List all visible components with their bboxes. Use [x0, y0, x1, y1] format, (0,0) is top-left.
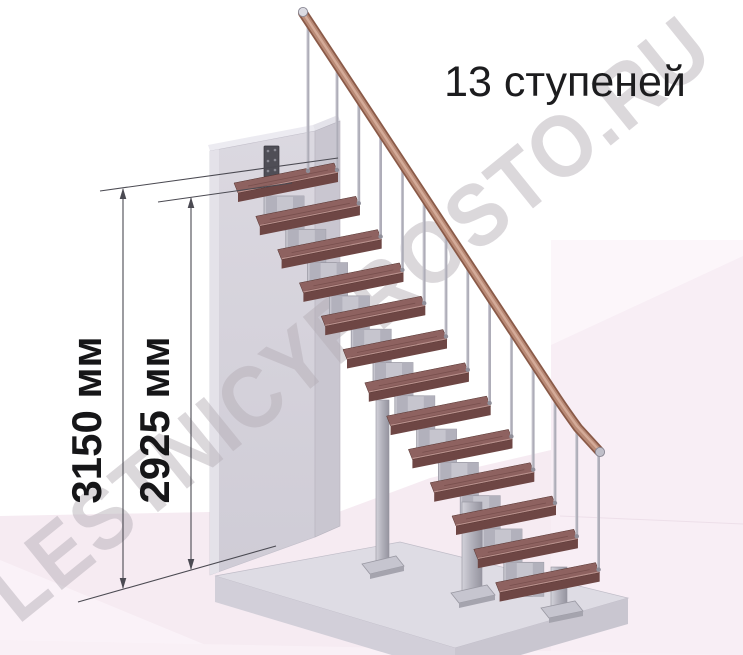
- baluster-foot: [422, 301, 426, 305]
- baluster-foot: [306, 169, 310, 173]
- support-column: [376, 400, 389, 570]
- mount-bolt-icon: [267, 170, 270, 173]
- mount-bolt-icon: [274, 149, 277, 152]
- mount-bolt-icon: [267, 150, 270, 153]
- baluster-foot: [466, 368, 470, 372]
- baluster-foot: [335, 168, 339, 172]
- baluster-foot: [487, 401, 491, 405]
- mount-plate: [264, 146, 279, 177]
- staircase-diagram: LESTNICYPROSTO.RU 3150 мм 2925 мм 13 сту…: [0, 0, 743, 655]
- baluster-foot: [553, 501, 557, 505]
- baluster-foot: [596, 567, 600, 571]
- mount-bolt-icon: [274, 159, 277, 162]
- page-title: 13 ступеней: [444, 58, 686, 106]
- baluster-foot: [575, 534, 579, 538]
- dimension-label-3150: 3150 мм: [63, 336, 110, 503]
- handrail-end-cap: [595, 447, 604, 456]
- baluster-foot: [509, 434, 513, 438]
- baluster-foot: [531, 468, 535, 472]
- mount-bolt-icon: [267, 160, 270, 163]
- baluster-foot: [400, 268, 404, 272]
- baluster-foot: [357, 201, 361, 205]
- handrail-top-cap: [298, 7, 307, 16]
- wall-mount-plate: [264, 146, 279, 177]
- mount-bolt-icon: [274, 169, 277, 172]
- baluster-foot: [444, 334, 448, 338]
- dimension-label-2925: 2925 мм: [131, 336, 178, 503]
- baluster-foot: [378, 234, 382, 238]
- scene-svg: LESTNICYPROSTO.RU 3150 мм 2925 мм 13 сту…: [0, 0, 743, 655]
